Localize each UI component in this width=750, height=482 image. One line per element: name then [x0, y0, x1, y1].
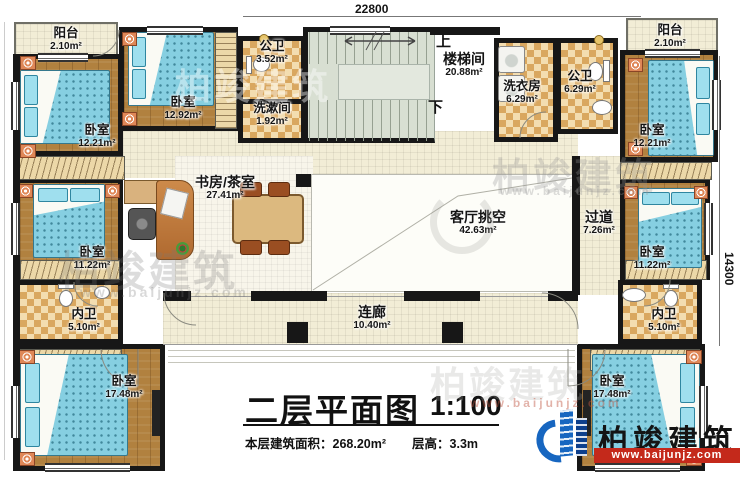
stairs-lower-flight: [309, 100, 430, 141]
dimension-right-line: [719, 56, 720, 346]
column: [442, 322, 463, 343]
dining-chair: [268, 182, 290, 197]
column: [287, 322, 308, 343]
room-label-study: 书房/茶室27.41m²: [195, 175, 255, 201]
dimension-top: 22800: [355, 2, 388, 16]
room-label-washroom: 洗漱间1.92m²: [253, 102, 291, 127]
room-label-ensuite-left: 内卫5.10m²: [68, 308, 100, 333]
wall: [572, 156, 580, 295]
room-label-bedroom-mid-left: 卧室11.22m²: [74, 246, 111, 271]
window: [704, 203, 713, 255]
sink-icon: [592, 100, 612, 115]
toilet-icon: [603, 60, 610, 82]
pillow: [38, 188, 68, 202]
floor-area-label: 本层建筑面积：: [245, 437, 333, 451]
bed: [20, 354, 128, 456]
logo-building-1: [560, 409, 573, 456]
plan-subtitle: 本层建筑面积：268.20m²层高：3.3m: [245, 433, 478, 452]
nightstand: [18, 184, 33, 198]
stairs-landing: [338, 64, 430, 100]
stairs-upper-flight: [309, 32, 430, 64]
window: [645, 49, 700, 58]
window: [595, 463, 680, 472]
pillow: [680, 363, 695, 403]
floor-area-value: 268.20m²: [333, 437, 387, 451]
pillow: [24, 107, 38, 137]
nightstand: [19, 350, 35, 364]
sink-icon: [622, 288, 646, 302]
wall: [251, 291, 327, 301]
dining-chair: [240, 240, 262, 255]
brand-url: www.baijunjz.com: [594, 448, 740, 463]
nightstand: [20, 144, 36, 158]
pillow: [642, 192, 670, 205]
sink-icon: [94, 286, 110, 299]
brand-logo-icon: [536, 408, 594, 466]
room-label-public-bath-2: 公卫6.29m²: [564, 70, 596, 95]
room-label-bedroom-bottom-right: 卧室17.48m²: [593, 375, 630, 400]
corridor-bottom-line: [163, 344, 578, 345]
pillow: [70, 188, 100, 202]
window: [11, 203, 20, 255]
room-label-corridor: 连廊10.40m²: [353, 305, 390, 331]
pillow: [24, 75, 38, 105]
storey-height-value: 3.3m: [450, 437, 479, 451]
stair-down-label: 下: [428, 96, 443, 117]
wardrobe-right-1: [620, 162, 712, 180]
eaves-lines: [168, 350, 575, 367]
room-label-ensuite-right: 内卫5.10m²: [648, 308, 680, 333]
wardrobe-left-1: [15, 156, 125, 180]
nightstand: [122, 112, 137, 126]
window: [11, 82, 20, 130]
storey-height-label: 层高：: [412, 437, 450, 451]
room-label-laundry: 洗衣房6.29m²: [503, 80, 541, 105]
floor-plan: 阳台2.10m² 卧室12.21m² 卧室12.92m² 公卫3.52m² 洗漱…: [0, 0, 750, 482]
nightstand: [20, 56, 36, 70]
nightstand: [624, 186, 638, 199]
pillow: [696, 67, 710, 99]
office-chair: [128, 208, 156, 240]
toilet-icon: [664, 290, 678, 307]
dimension-top-line: [243, 16, 641, 17]
washer-icon: [498, 46, 525, 73]
tv-icon: [152, 390, 160, 436]
logo-building-2: [576, 418, 587, 456]
nightstand: [122, 32, 137, 46]
window: [38, 53, 88, 62]
toilet-icon: [59, 290, 73, 307]
living-void-floor: [311, 174, 575, 292]
pillow: [25, 407, 40, 447]
room-label-living-void: 客厅挑空42.63m²: [450, 210, 506, 236]
pillow: [696, 103, 710, 135]
room-label-bedroom-top-left: 卧室12.21m²: [78, 124, 115, 149]
room-label-balcony-top-left: 阳台2.10m²: [50, 27, 82, 52]
dining-chair: [268, 240, 290, 255]
window: [147, 26, 203, 35]
wall: [548, 291, 578, 301]
room-label-bedroom-bottom-left: 卧室17.48m²: [105, 375, 142, 400]
tea-table: [232, 194, 304, 244]
room-label-passage: 过道7.26m²: [583, 210, 615, 236]
plan-scale: 1:100: [430, 390, 502, 422]
corridor-rail-line: [163, 296, 578, 297]
wall: [404, 291, 480, 301]
window: [330, 26, 390, 35]
toilet-icon: [663, 284, 679, 289]
nightstand: [105, 184, 120, 198]
desk-cabinet: [124, 180, 160, 204]
pillow: [25, 363, 40, 403]
nightstand: [694, 186, 708, 199]
room-label-bedroom-top: 卧室12.92m²: [164, 96, 201, 121]
nightstand: [628, 58, 643, 72]
room-label-balcony-top-right: 阳台2.10m²: [654, 24, 686, 49]
window: [45, 463, 130, 472]
nightstand: [19, 452, 35, 466]
closet-top-bedroom: [215, 32, 237, 129]
room-label-bedroom-top-right: 卧室12.21m²: [633, 124, 670, 149]
boundary-line-left: [4, 22, 5, 460]
toilet-icon: [58, 284, 74, 289]
toilet-icon: [246, 56, 252, 74]
room-label-stairwell: 楼梯间20.88m²: [443, 52, 485, 78]
light-icon: [594, 35, 604, 45]
room-label-bedroom-mid-right: 卧室11.22m²: [634, 246, 671, 271]
window: [11, 386, 20, 438]
plant-icon: [176, 242, 189, 255]
title-underline: [243, 424, 499, 426]
stair-up-label: 上: [436, 30, 451, 51]
wall: [163, 291, 191, 301]
dimension-right: 14300: [722, 252, 736, 285]
nightstand: [686, 350, 702, 364]
room-label-public-bath-1: 公卫3.52m²: [256, 40, 288, 65]
pillow: [132, 69, 146, 99]
wall: [296, 174, 311, 187]
